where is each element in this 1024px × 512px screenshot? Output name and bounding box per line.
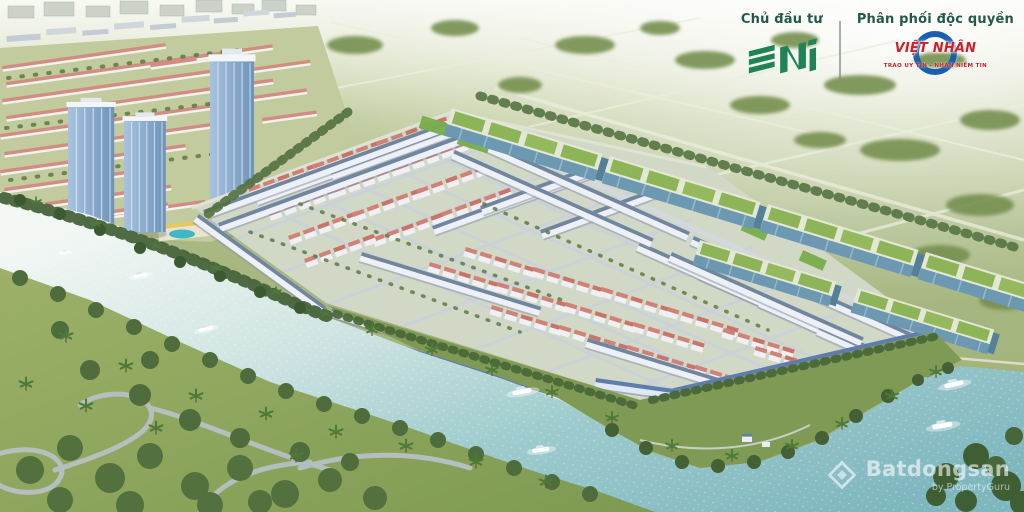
- sni-logo-icon: [742, 31, 822, 77]
- distributor-label: Phân phối độc quyền: [857, 12, 1014, 27]
- viet-nhan-tagline: TRAO UY TÍN - NHẬN NIỀM TIN: [884, 63, 987, 69]
- batdongsan-diamond-icon: [827, 460, 857, 490]
- investor-brand: Chủ đầu tư: [741, 12, 823, 77]
- distributor-brand: Phân phối độc quyền VIỆT NHÂN TRAO UY TÍ…: [857, 12, 1014, 81]
- branding-divider: [839, 21, 841, 79]
- viet-nhan-name: VIỆT NHÂN: [895, 41, 977, 56]
- watermark: Batdongsan by PropertyGuru: [827, 459, 1010, 493]
- podium-pool: [169, 230, 195, 239]
- watermark-text: Batdongsan by PropertyGuru: [866, 459, 1010, 493]
- watermark-byline: by PropertyGuru: [932, 483, 1010, 493]
- tower-1: [66, 98, 115, 227]
- viet-nhan-logo: VIỆT NHÂN TRAO UY TÍN - NHẬN NIỀM TIN: [873, 31, 997, 81]
- branding-bar: Chủ đầu tư Phân phối độc quyền VIỆT NHÂN…: [741, 12, 1014, 81]
- watermark-name: Batdongsan: [866, 459, 1010, 480]
- investor-label: Chủ đầu tư: [741, 12, 823, 27]
- tower-2: [123, 112, 168, 232]
- aerial-masterplan-render: Chủ đầu tư Phân phối độc quyền VIỆT NHÂN…: [0, 0, 1024, 512]
